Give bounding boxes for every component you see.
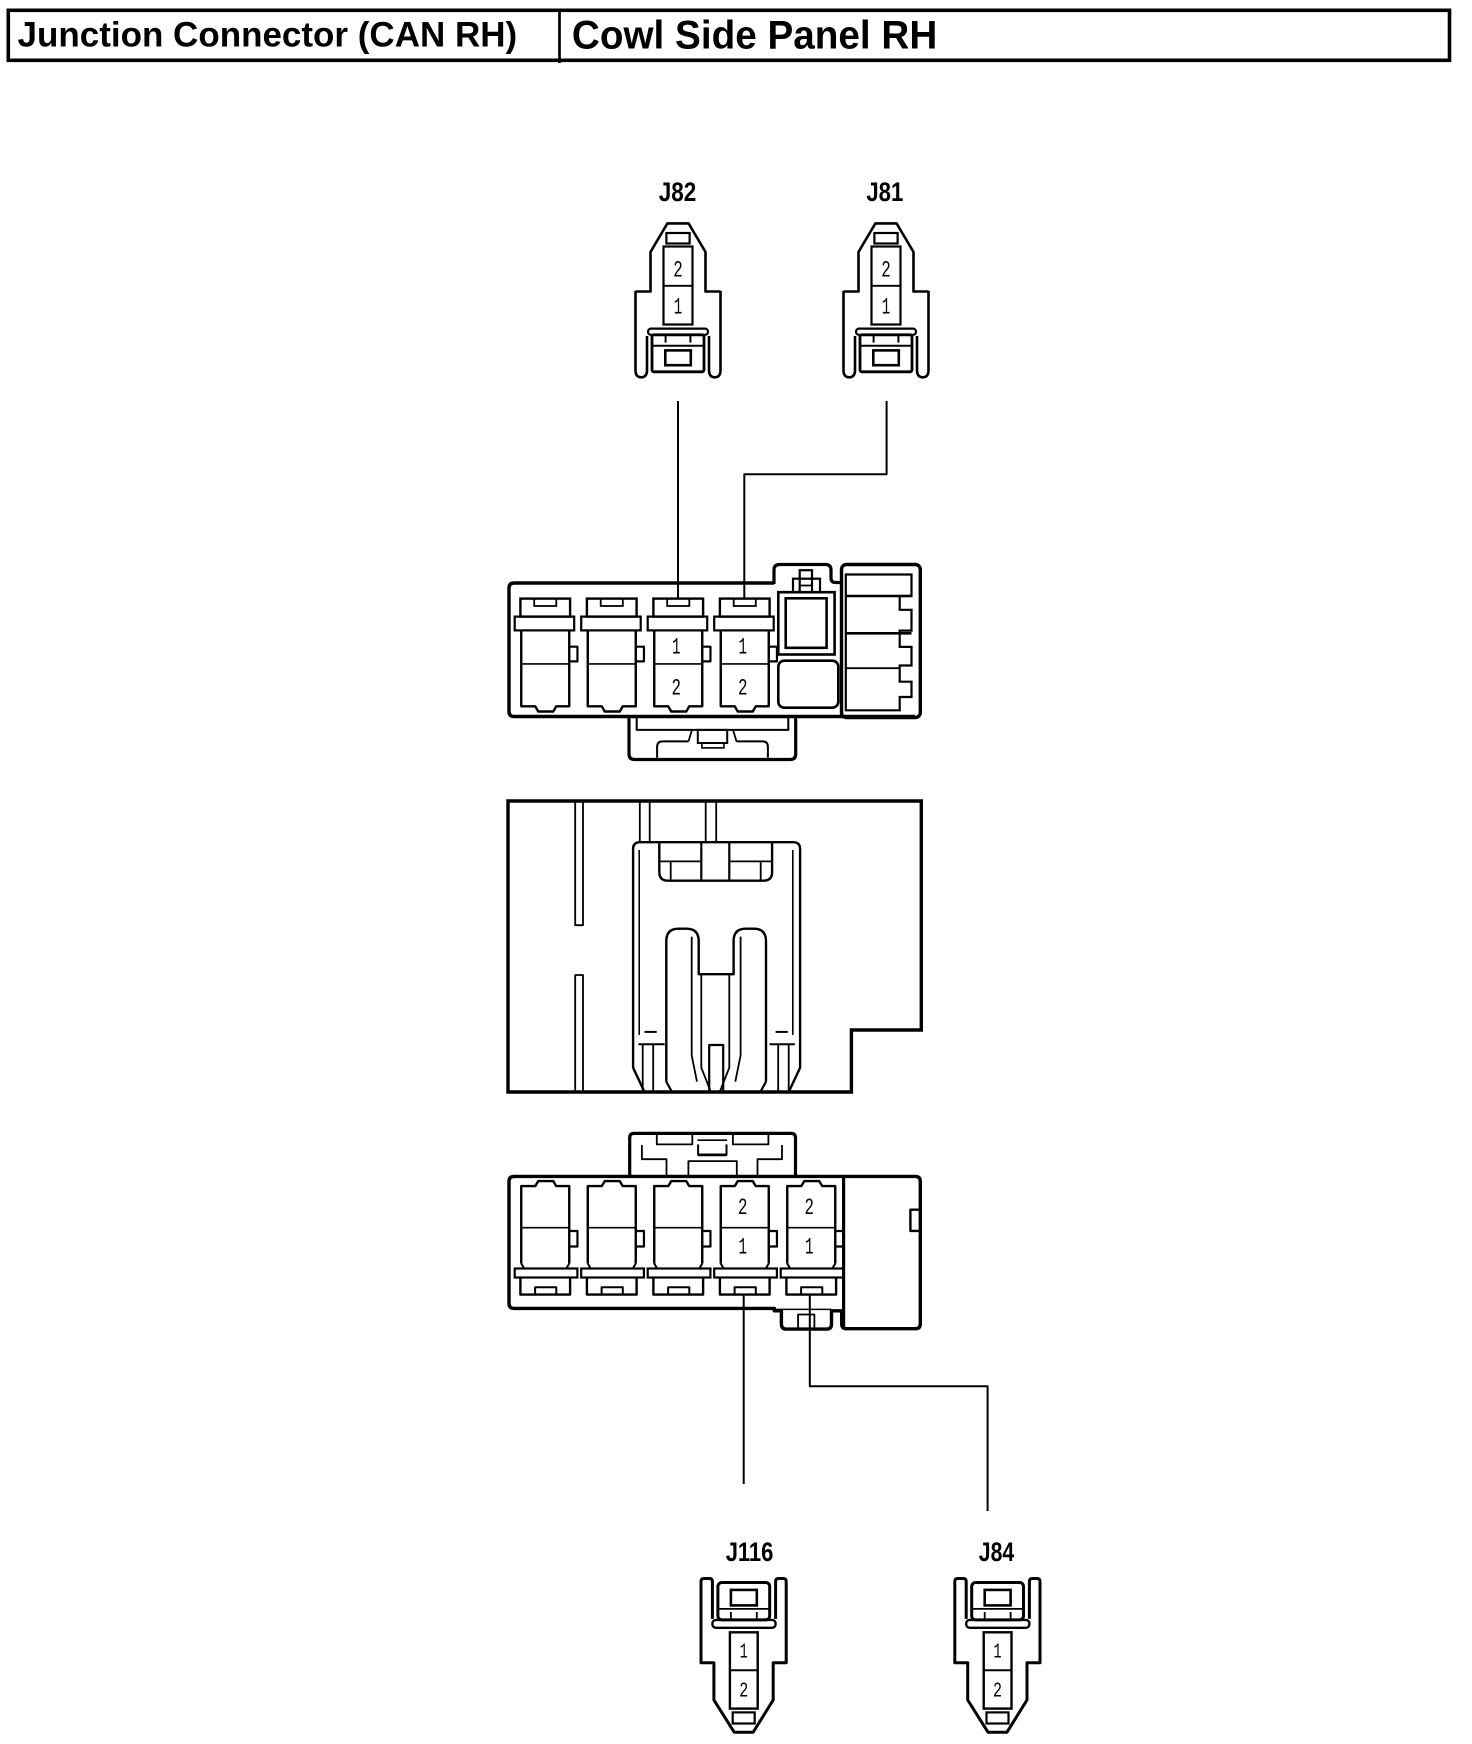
svg-text:2: 2 [672,676,682,702]
svg-text:1: 1 [739,1235,748,1261]
svg-text:2: 2 [993,1680,1002,1704]
svg-text:J116: J116 [726,1537,774,1567]
svg-text:J84: J84 [979,1537,1015,1567]
svg-text:2: 2 [738,1195,748,1221]
svg-text:2: 2 [738,676,748,702]
svg-text:1: 1 [805,1235,814,1261]
svg-text:2: 2 [673,258,683,284]
svg-text:1: 1 [672,635,681,661]
svg-text:J81: J81 [866,177,903,207]
svg-text:2: 2 [805,1195,815,1221]
svg-text:1: 1 [674,295,683,321]
svg-text:Junction Connector (CAN RH): Junction Connector (CAN RH) [18,16,518,55]
svg-text:J82: J82 [659,177,697,207]
svg-text:1: 1 [994,1641,1002,1665]
svg-text:1: 1 [739,635,748,661]
svg-text:Cowl Side Panel RH: Cowl Side Panel RH [572,13,937,57]
svg-text:2: 2 [739,1680,748,1704]
svg-text:2: 2 [881,258,891,284]
svg-text:1: 1 [740,1641,748,1665]
svg-text:1: 1 [882,295,891,321]
